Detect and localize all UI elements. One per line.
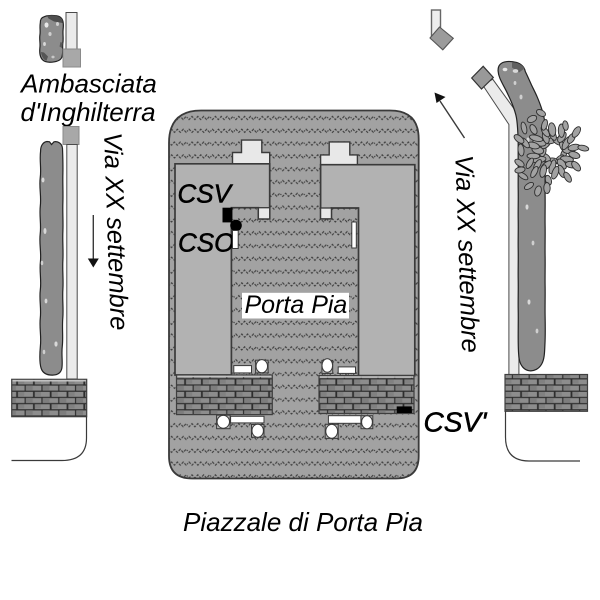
svg-text:Porta Pia: Porta Pia (245, 291, 348, 319)
svg-text:Piazzale di Porta Pia: Piazzale di Porta Pia (183, 507, 423, 537)
svg-text:d'Inghilterra: d'Inghilterra (21, 97, 156, 127)
svg-text:CSO: CSO (178, 228, 234, 258)
svg-text:CSV: CSV (178, 179, 234, 209)
svg-text:Ambasciata: Ambasciata (19, 69, 157, 99)
svg-text:CSV': CSV' (424, 407, 489, 438)
